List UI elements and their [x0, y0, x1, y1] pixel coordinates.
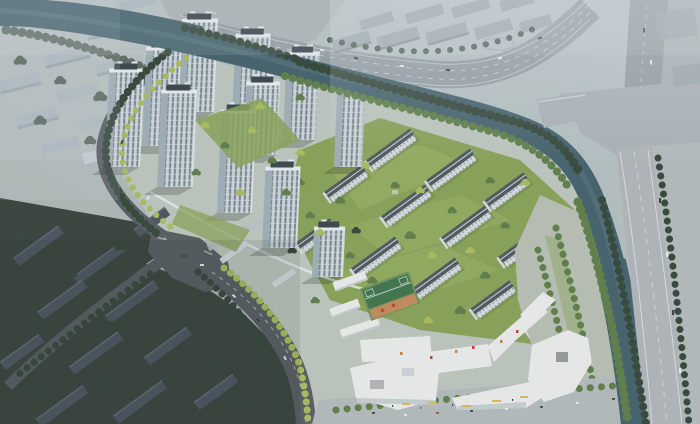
rendering-canvas: Aerial rendering of a riverside resident… — [0, 0, 700, 424]
atmospheric-haze: Atmospheric haze — [0, 0, 700, 424]
aerial-rendering: Aerial rendering of a riverside resident… — [0, 0, 700, 424]
